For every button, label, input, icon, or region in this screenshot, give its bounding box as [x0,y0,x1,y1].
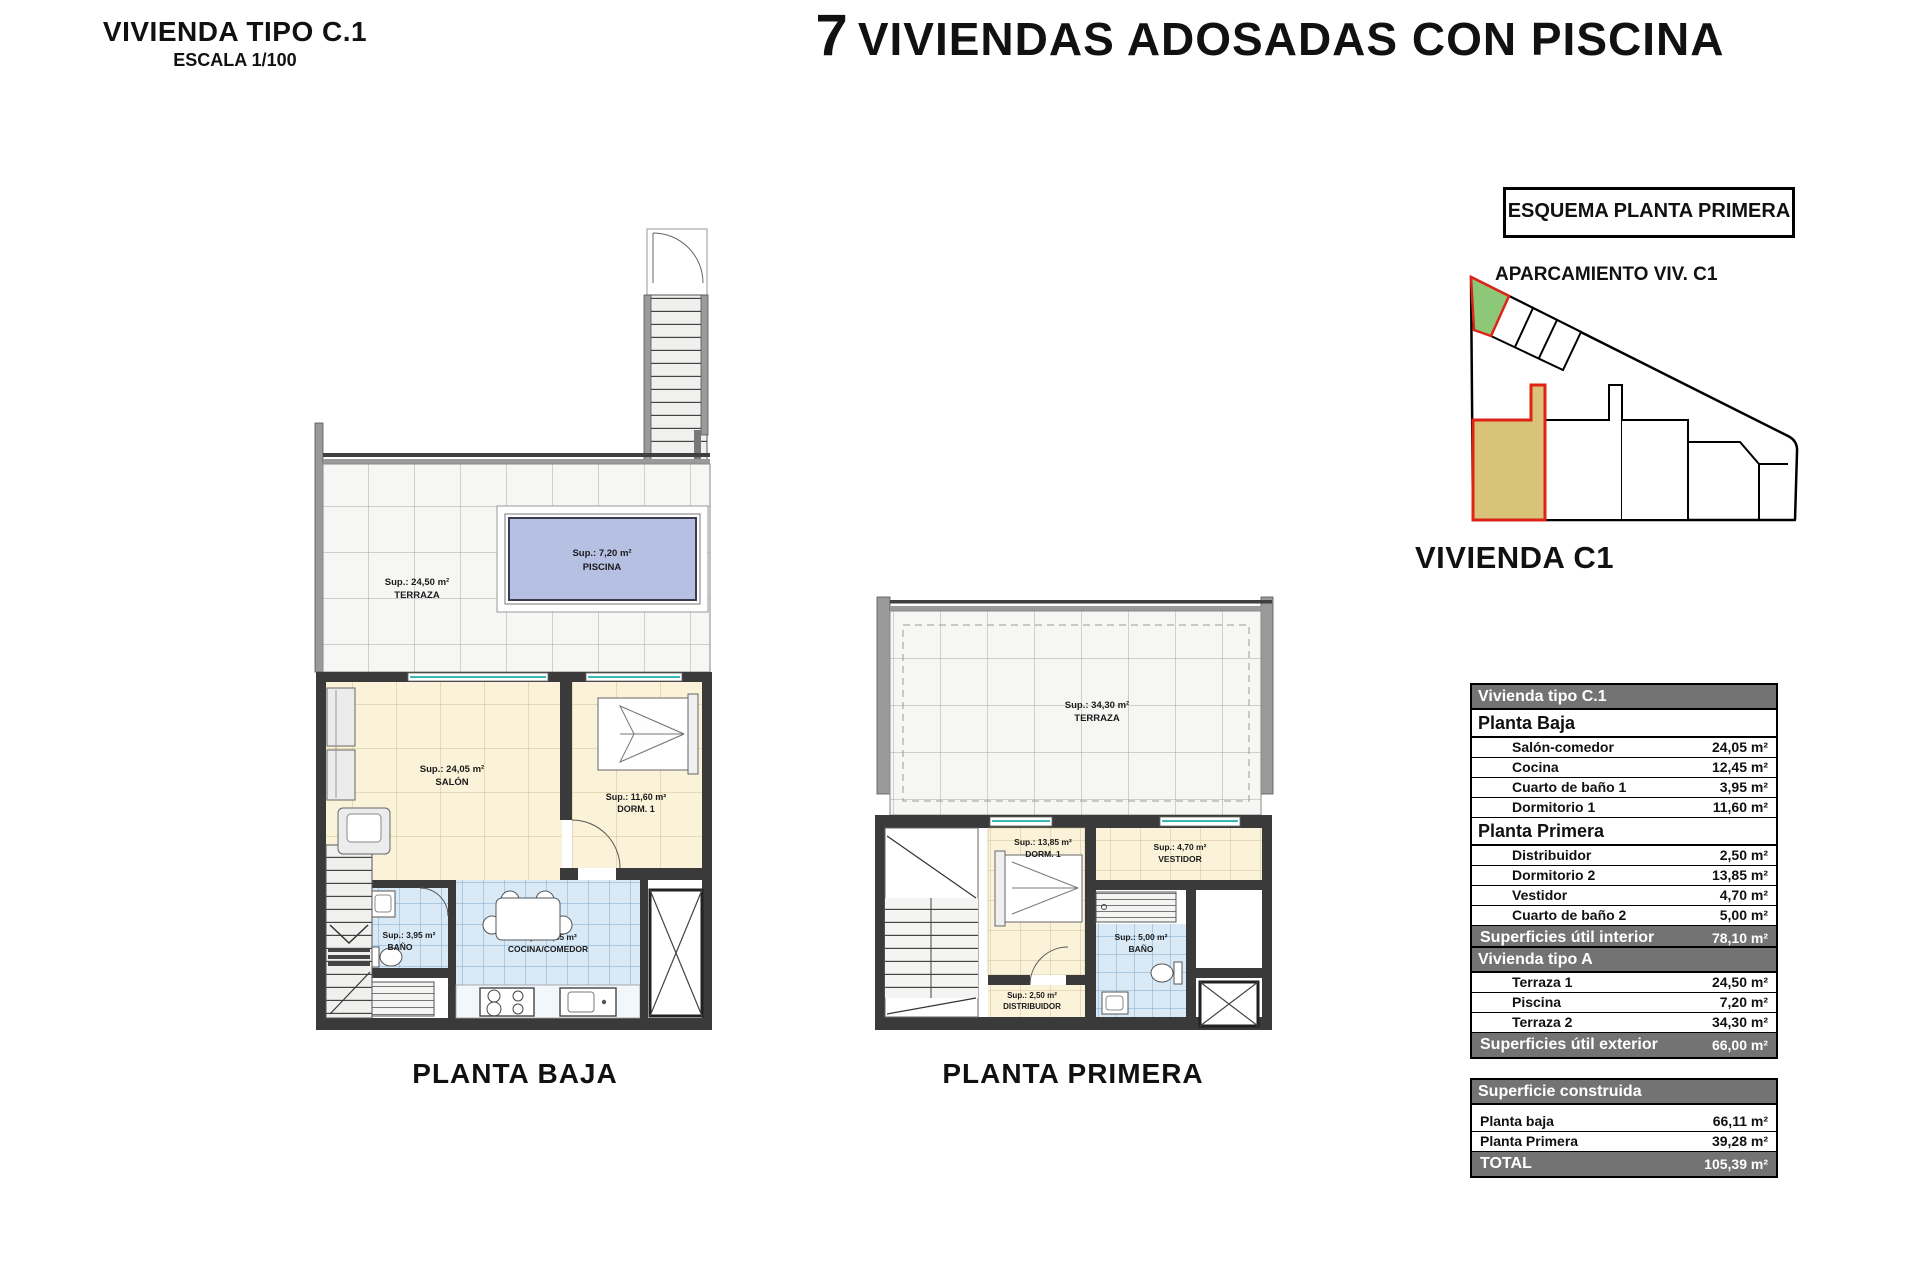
row-label: Salón-comedor [1512,739,1614,756]
vivienda-c1-label: VIVIENDA C1 [1415,540,1715,576]
table-row: Salón-comedor24,05 m² [1472,738,1776,758]
main-title-text: VIVIENDAS ADOSADAS CON PISCINA [858,12,1725,66]
stairs-first-floor [885,828,978,1017]
store-room-2 [1186,890,1272,1030]
footer-value: 105,39 m² [1704,1155,1768,1173]
exterior-stairs [644,229,708,485]
table-row: Distribuidor2,50 m² [1472,846,1776,866]
distribuidor-sup: Sup.: 2,50 m² [1007,991,1057,1000]
vestidor-sup: Sup.: 4,70 m² [1154,842,1207,852]
footer-value: 78,10 m² [1712,929,1768,947]
vestidor: Sup.: 4,70 m² VESTIDOR [1085,828,1272,890]
dorm2-name: DORM. 1 [1025,849,1061,859]
table-row: Vestidor4,70 m² [1472,886,1776,906]
row-label: Terraza 2 [1512,1014,1572,1031]
table-row: Cocina12,45 m² [1472,758,1776,778]
row-label: Terraza 1 [1512,974,1572,991]
table-row: Dormitorio 111,60 m² [1472,798,1776,818]
terraza-sup: Sup.: 24,50 m² [385,577,449,588]
bano2-name: BAÑO [1128,944,1153,954]
piscina-sup: Sup.: 7,20 m² [572,548,631,559]
porch-decking [372,982,434,1016]
table-row: Dormitorio 213,85 m² [1472,866,1776,886]
table-row: Piscina7,20 m² [1472,993,1776,1013]
row-label: Dormitorio 2 [1512,867,1595,884]
main-title-number: 7 [816,2,848,69]
row-value: 66,11 m² [1713,1113,1768,1130]
footer-label: Superficies útil interior [1480,929,1654,947]
row-value: 7,20 m² [1720,994,1768,1011]
table-section-title: Planta Primera [1472,818,1776,846]
bedroom2: Sup.: 13,85 m² DORM. 1 [988,828,1085,985]
row-label: Distribuidor [1512,847,1591,864]
row-label: Cuarto de baño 2 [1512,907,1626,924]
bathroom2: Sup.: 5,00 m² BAÑO [1085,890,1186,1030]
store-room [640,880,702,1018]
table-spacer [1472,1105,1776,1112]
bano2-sup: Sup.: 5,00 m² [1115,932,1168,942]
terrace: Sup.: 24,50 m² TERRAZA Sup.: 7,20 m² PIS… [315,423,710,672]
sheet-scale: ESCALA 1/100 [85,50,385,71]
planta-primera-caption: PLANTA PRIMERA [893,1058,1253,1090]
table-row: Cuarto de baño 13,95 m² [1472,778,1776,798]
table-row: Planta baja66,11 m² [1472,1112,1776,1132]
bano-sup: Sup.: 3,95 m² [383,930,436,940]
planta-primera-plan: Sup.: 34,30 m² TERRAZA [860,560,1280,1060]
row-value: 4,70 m² [1720,887,1768,904]
toilet2 [1151,964,1173,982]
table-row: Terraza 234,30 m² [1472,1013,1776,1033]
row-value: 5,00 m² [1720,907,1768,924]
piscina-name: PISCINA [583,562,622,573]
table-title: Vivienda tipo C.1 [1472,685,1776,710]
table-title: Vivienda tipo A [1472,948,1776,973]
row-value: 24,05 m² [1712,739,1768,756]
table-row: Terraza 124,50 m² [1472,973,1776,993]
sheet-title-block: VIVIENDA TIPO C.1 ESCALA 1/100 [85,16,385,71]
salon-name: SALÓN [435,776,468,788]
table-section-title: Planta Baja [1472,710,1776,738]
cocina-name: COCINA/COMEDOR [508,944,588,954]
main-title: 7 VIVIENDAS ADOSADAS CON PISCINA [620,2,1920,69]
terraza2-name: TERRAZA [1074,713,1120,724]
row-value: 3,95 m² [1720,779,1768,796]
row-label: Cuarto de baño 1 [1512,779,1626,796]
table-row: Cuarto de baño 25,00 m² [1472,906,1776,926]
sheet-title: VIVIENDA TIPO C.1 [85,16,385,48]
row-value: 34,30 m² [1712,1014,1768,1031]
bed [598,694,698,774]
row-value: 2,50 m² [1720,847,1768,864]
shower [1096,892,1176,922]
dorm1-name: DORM. 1 [617,804,655,814]
table-footer: Superficies útil exterior66,00 m² [1472,1033,1776,1057]
distribuidor: Sup.: 2,50 m² DISTRIBUIDOR [988,985,1085,1017]
row-label: Planta baja [1480,1113,1554,1130]
row-value: 12,45 m² [1712,759,1768,776]
sofa [327,688,355,800]
row-label: Piscina [1512,994,1561,1011]
plan-sheet: VIVIENDA TIPO C.1 ESCALA 1/100 7 VIVIEND… [0,0,1920,1280]
armchair [338,808,390,854]
row-value: 24,50 m² [1712,974,1768,991]
footer-value: 66,00 m² [1712,1036,1768,1054]
planta-baja-plan: Sup.: 24,50 m² TERRAZA Sup.: 7,20 m² PIS… [300,180,720,1060]
footer-label: TOTAL [1480,1155,1532,1173]
kitchen: Sup.: 12,45 m² COCINA/COMEDOR [456,880,640,1018]
terrace-first-floor: Sup.: 34,30 m² TERRAZA [877,597,1273,815]
table-superficie-construida: Superficie construidaPlanta baja66,11 m²… [1470,1078,1778,1178]
distribuidor-name: DISTRIBUIDOR [1003,1002,1061,1011]
table-vivienda-a: Vivienda tipo ATerraza 124,50 m²Piscina7… [1470,946,1778,1059]
pool [509,518,696,600]
salon-sup: Sup.: 24,05 m² [420,764,484,775]
table-footer: TOTAL105,39 m² [1472,1152,1776,1176]
dorm1-sup: Sup.: 11,60 m² [606,792,667,802]
row-label: Planta Primera [1480,1133,1578,1150]
bed2 [995,851,1082,926]
footer-label: Superficies útil exterior [1480,1036,1658,1054]
bano-name: BAÑO [387,942,412,952]
dining-table [496,898,560,940]
vestidor-name: VESTIDOR [1158,854,1201,864]
table-row: Planta Primera39,28 m² [1472,1132,1776,1152]
row-label: Vestidor [1512,887,1567,904]
table-title: Superficie construida [1472,1080,1776,1105]
dorm2-sup: Sup.: 13,85 m² [1014,837,1072,847]
bathroom: Sup.: 3,95 m² BAÑO [360,880,456,1018]
table-vivienda-c1: Vivienda tipo C.1Planta BajaSalón-comedo… [1470,683,1778,952]
row-label: Dormitorio 1 [1512,799,1595,816]
interior-stairs [326,845,372,1018]
unit-3 [1622,420,1688,520]
terraza2-sup: Sup.: 34,30 m² [1065,700,1129,711]
terraza-name: TERRAZA [394,590,440,601]
row-value: 11,60 m² [1713,799,1768,816]
esquema-title-box: ESQUEMA PLANTA PRIMERA [1503,187,1795,238]
row-label: Cocina [1512,759,1559,776]
planta-baja-caption: PLANTA BAJA [335,1058,695,1090]
site-key-plan [1455,262,1815,532]
row-value: 13,85 m² [1712,867,1768,884]
row-value: 39,28 m² [1712,1133,1768,1150]
